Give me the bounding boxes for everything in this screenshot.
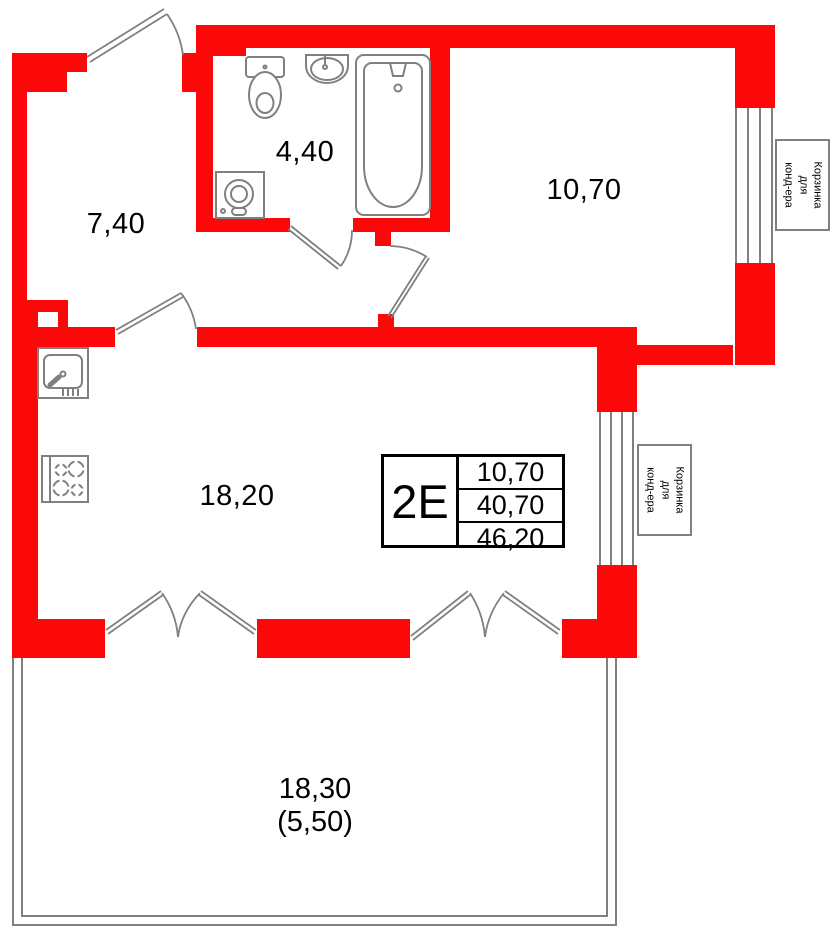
- wall-segment: [27, 300, 68, 312]
- wall-segment: [637, 345, 733, 365]
- ac-basket-label: Корзинка для конд-ера: [781, 141, 824, 229]
- entry-door-swing-icon: [87, 9, 183, 62]
- bath-sink-icon: [306, 55, 348, 83]
- bathroom-door-swing-icon: [288, 226, 352, 269]
- kitchen-sink-icon: [38, 348, 88, 398]
- bedroom-window-icon: [736, 108, 772, 263]
- unit-areas-column: 10,70 40,70 46,20: [459, 457, 562, 545]
- room-area-label-bathroom: 4,40: [245, 136, 365, 169]
- wall-segment: [196, 48, 213, 232]
- unit-total-area-cell: 46,20: [459, 521, 562, 554]
- wall-segment: [12, 53, 27, 327]
- unit-area-no-balcony-cell: 40,70: [459, 488, 562, 521]
- unit-living-area-cell: 10,70: [459, 457, 562, 488]
- wall-segment: [27, 327, 115, 347]
- ac-basket-box-bedroom: Корзинка для конд-ера: [775, 139, 830, 231]
- balcony-door-left-icon: [106, 591, 256, 637]
- wall-segment: [562, 619, 637, 658]
- wall-segment: [735, 25, 775, 108]
- room-area-label-living: 18,20: [177, 480, 297, 513]
- wall-segment: [27, 312, 38, 327]
- unit-type-cell: 2E: [384, 457, 459, 545]
- wall-segment: [430, 48, 450, 232]
- bathtub-icon: [356, 55, 430, 215]
- wall-segment: [58, 312, 68, 327]
- washing-machine-icon: [216, 172, 264, 218]
- balcony-area-value: 18,30: [215, 773, 415, 806]
- room-area-label-hall: 7,40: [56, 208, 176, 241]
- wall-segment: [196, 218, 290, 232]
- wall-segment: [597, 327, 637, 365]
- floor-plan: 7,40 4,40 10,70 18,20 18,30 (5,50) 2E 10…: [0, 0, 838, 940]
- unit-info-table: 2E 10,70 40,70 46,20: [381, 454, 565, 548]
- wall-segment: [196, 25, 775, 48]
- room-area-label-bedroom: 10,70: [524, 174, 644, 207]
- wall-segment: [257, 619, 410, 658]
- wall-segment: [12, 619, 105, 658]
- wall-segment: [197, 327, 637, 347]
- wall-segment: [12, 327, 38, 658]
- wall-segment: [375, 232, 391, 246]
- wall-segment: [597, 365, 637, 412]
- ac-basket-box-living: Корзинка для конд-ера: [637, 444, 692, 536]
- balcony-door-right-icon: [411, 591, 560, 640]
- room-area-label-balcony: 18,30 (5,50): [215, 773, 415, 839]
- bedroom-door-swing-icon: [388, 246, 429, 318]
- balcony-area-reduced-value: (5,50): [215, 806, 415, 839]
- toilet-icon: [246, 57, 284, 118]
- wall-segment: [213, 48, 246, 56]
- living-window-icon: [600, 412, 633, 565]
- ac-basket-label: Корзинка для конд-ера: [643, 446, 686, 534]
- hall-door-swing-icon: [116, 293, 196, 334]
- wall-segment: [735, 263, 775, 365]
- stove-icon: [42, 456, 88, 502]
